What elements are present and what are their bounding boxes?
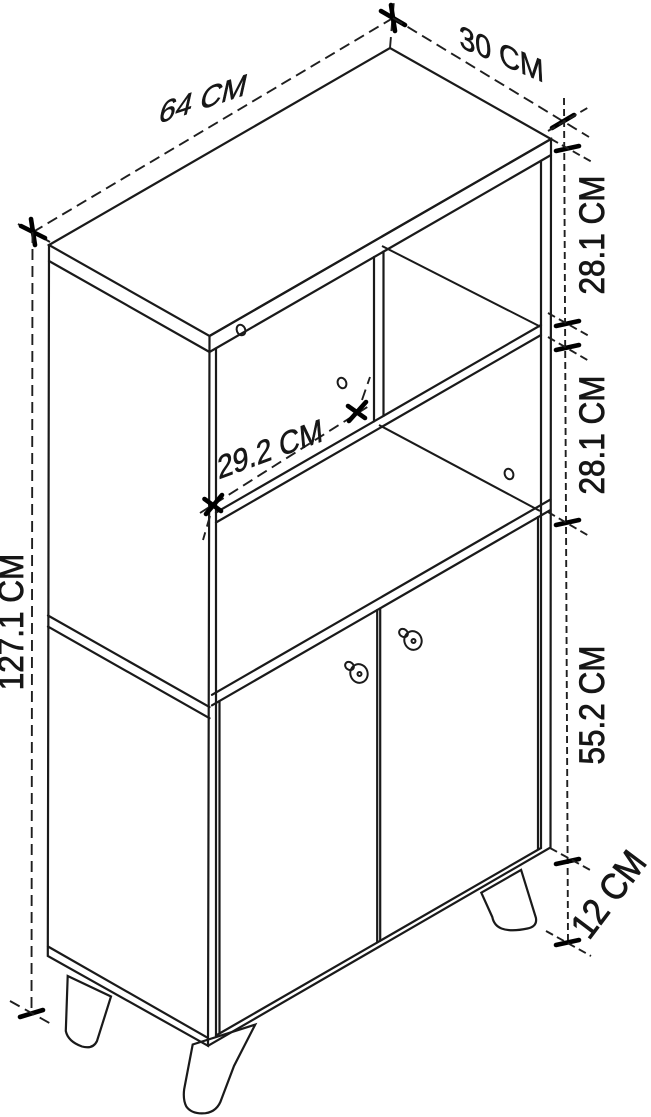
svg-text:28.1 CM: 28.1 CM bbox=[574, 376, 613, 495]
svg-text:28.1 CM: 28.1 CM bbox=[574, 176, 613, 295]
svg-text:55.2 CM: 55.2 CM bbox=[574, 646, 613, 765]
svg-text:127.1 CM: 127.1 CM bbox=[0, 554, 31, 691]
